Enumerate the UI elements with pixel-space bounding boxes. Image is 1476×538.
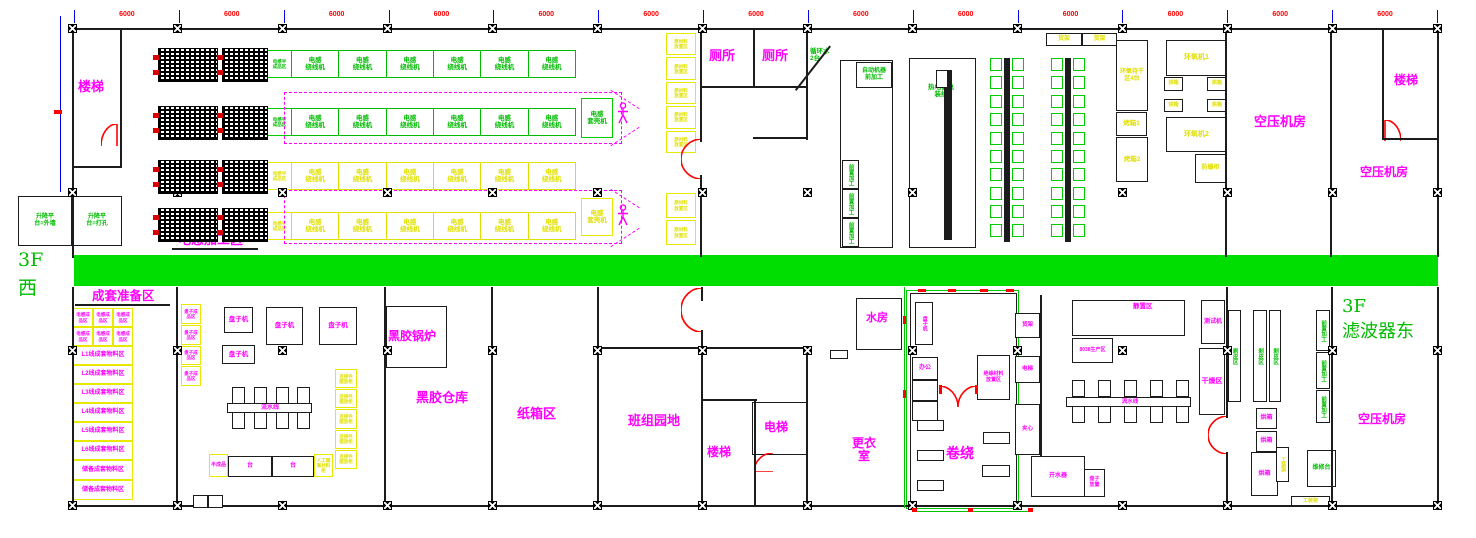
column-marker <box>383 501 392 510</box>
column-marker <box>173 24 182 33</box>
column-marker <box>593 24 602 33</box>
wall <box>753 28 755 88</box>
chair <box>1051 113 1063 126</box>
glue-store-label: 黑胶仓库 <box>416 391 468 406</box>
column-marker <box>698 346 707 355</box>
pre-process-box: 前置加工 <box>842 189 859 218</box>
pre-process-box-2: 前置加工 <box>1316 390 1330 423</box>
bay-dimension: 6000 <box>914 10 1019 23</box>
bay-dimension: 6000 <box>180 10 285 23</box>
left-dimension-line <box>60 16 61 192</box>
chair <box>1051 58 1063 71</box>
wall <box>1225 28 1227 257</box>
column-marker <box>383 188 392 197</box>
chair <box>1176 406 1189 423</box>
floor-tag-left-west: 西 <box>18 278 37 299</box>
chair <box>990 76 1002 89</box>
person-icon <box>616 102 630 124</box>
work-table <box>208 495 223 508</box>
chair <box>232 412 245 429</box>
door-arc <box>754 453 773 472</box>
wall <box>806 348 808 505</box>
inductor-finished-grid: 电感成 品区电感成 品区电感成 品区电感成 品区电感成 品区电感成 品区 <box>73 308 133 346</box>
raw-material-box: 原材料 放置区 <box>666 106 696 128</box>
chair <box>1072 380 1085 397</box>
connector-rack: 连接件 摆放柜连接件 摆放柜连接件 摆放柜连接件 摆放柜连接件 摆放柜 <box>335 369 357 469</box>
floor-tag-right-east: 滤波器东 <box>1342 322 1414 342</box>
raw-material-rack: 原材料 放置区原材料 放置区原材料 放置区原材料 放置区原材料 放置区 <box>666 33 696 153</box>
rest-area-box <box>1072 300 1185 336</box>
raw-material-rack: 原材料 放置区原材料 放置区 <box>666 193 696 245</box>
column-marker <box>803 501 812 510</box>
press-machine-icon <box>222 208 268 242</box>
auto-machine-label: 自动机器 前加工 <box>856 62 892 88</box>
chair <box>1073 205 1085 218</box>
chair <box>254 412 267 429</box>
peeling-area-box: 剥皮区 <box>1253 310 1267 402</box>
semi-finished-tag: 电感半 成品区 <box>267 162 292 190</box>
stairs-bottom-label: 楼梯 <box>707 446 731 459</box>
production-area-box: 8038生产区 <box>1072 338 1113 363</box>
bay-dimension: 6000 <box>809 10 914 23</box>
column-marker <box>1013 24 1022 33</box>
chair <box>1051 150 1063 163</box>
air-compressor-room-label: 空压机房 <box>1360 166 1408 179</box>
connector-cabinet: 连接件 摆放柜 <box>335 389 357 408</box>
wall <box>384 287 386 505</box>
bay-dimension: 6000 <box>1333 10 1438 23</box>
wall <box>701 287 703 301</box>
wall <box>1226 452 1228 506</box>
casing-machine: 电感 套壳机 <box>581 98 613 138</box>
column-marker <box>68 24 77 33</box>
test-machine-box: 测试机 <box>1201 300 1225 344</box>
bay-dimension: 6000 <box>599 10 704 23</box>
double-door <box>939 386 977 407</box>
column-marker <box>1118 501 1127 510</box>
chair <box>1073 76 1085 89</box>
column-marker <box>908 188 917 197</box>
office-box: 办公 <box>912 357 938 380</box>
work-table <box>917 480 944 491</box>
plate-finished-cell: 盘子成 品区 <box>181 304 201 324</box>
plate-finished-cell: 盘子成 品区 <box>181 366 201 386</box>
press-machine-icon <box>158 208 218 242</box>
plate-machine: 盘子机 <box>224 307 253 333</box>
material-row: L5线成套物料区 <box>73 422 133 441</box>
pre-process-box: 前置加工 <box>842 160 859 189</box>
bench-box: 台 <box>228 456 272 477</box>
column-marker <box>1328 24 1337 33</box>
column-marker <box>908 24 917 33</box>
bench-box: 台 <box>272 456 314 477</box>
water-heater-room: 开水器 <box>1031 456 1085 497</box>
red-dimension-mark <box>948 289 956 292</box>
plate-finished-cell: 盘子成 品区 <box>181 346 201 366</box>
drying-area-box: 干燥区 <box>1199 348 1225 415</box>
press-machine-icon <box>158 106 218 140</box>
chair <box>1051 224 1063 237</box>
column-marker <box>1223 188 1232 197</box>
red-dimension-mark <box>903 390 906 398</box>
chair <box>1012 224 1024 237</box>
work-table <box>982 465 1010 477</box>
winding-machine-cell: 电感 绕线机 <box>528 50 576 78</box>
column-marker <box>1223 346 1232 355</box>
plate-machine: 盘子机 <box>266 307 303 345</box>
pre-process-box-2: 前置加工 <box>1316 310 1330 351</box>
chair <box>990 168 1002 181</box>
column-marker <box>1118 188 1127 197</box>
rest-area-label: 静置区 <box>1133 303 1153 310</box>
wall <box>806 28 808 140</box>
wall <box>1330 28 1332 257</box>
chair <box>1051 187 1063 200</box>
chair <box>1012 113 1024 126</box>
chair <box>1098 380 1111 397</box>
work-table <box>830 350 848 359</box>
wall <box>1437 28 1439 257</box>
column-marker <box>278 501 287 510</box>
peeling-area-box: 剥皮区 <box>1228 310 1241 402</box>
wall <box>700 88 702 142</box>
peeling-area-box: 剥皮区 <box>1269 310 1281 402</box>
dimension-strip: 6000600060006000600060006000600060006000… <box>74 10 1438 23</box>
column-marker <box>278 24 287 33</box>
red-dimension-mark <box>939 385 942 394</box>
wall <box>72 287 74 507</box>
column-marker <box>278 188 287 197</box>
shelf-box: 货架 <box>1082 33 1117 46</box>
column-marker <box>803 24 812 33</box>
chair <box>1073 113 1085 126</box>
chair <box>1051 76 1063 89</box>
chair <box>990 150 1002 163</box>
inductor-finished-cell: 电感成 品区 <box>113 327 133 346</box>
column-marker <box>173 346 182 355</box>
column-marker <box>488 501 497 510</box>
chair <box>1012 95 1024 108</box>
air-compressor-room-label-br: 空压机房 <box>1358 413 1406 426</box>
wall <box>120 28 122 168</box>
changing-room-label: 更衣 室 <box>852 437 876 464</box>
column-marker <box>383 346 392 355</box>
work-table <box>917 420 944 431</box>
bay-dimension: 6000 <box>1228 10 1333 23</box>
floor-tag-left-3f: 3F <box>18 250 43 271</box>
stairs-top-left-label: 楼梯 <box>78 80 104 95</box>
small-oven: 烘箱 <box>1164 77 1183 91</box>
work-table <box>912 401 938 421</box>
cabinet-box <box>912 380 938 401</box>
core-box: 夹心 <box>1015 404 1040 455</box>
title-underline <box>75 304 170 306</box>
small-oven: 烘箱 <box>1207 99 1227 112</box>
wall <box>700 86 808 88</box>
lift-platform-drill: 升降平 台=打孔 <box>72 196 122 246</box>
press-machine-icon <box>222 106 268 140</box>
red-dimension-mark <box>912 508 917 512</box>
chair <box>1150 380 1163 397</box>
inductor-finished-cell: 电感成 品区 <box>73 327 93 346</box>
material-row: L4线成套物料区 <box>73 403 133 422</box>
lift-platform-wall: 升降平 台=外墙 <box>18 196 72 246</box>
press-machine-icon <box>158 160 218 194</box>
corridor-band <box>74 255 1438 286</box>
column-marker <box>593 188 602 197</box>
column-marker <box>908 346 917 355</box>
chair <box>1072 406 1085 423</box>
bay-dimension: 6000 <box>74 10 180 23</box>
chair <box>1073 58 1085 71</box>
fixture-rack-box: 工装架 <box>1276 447 1289 482</box>
conveyor-bar <box>1004 58 1010 242</box>
column-marker <box>1328 501 1337 510</box>
plate-machine-vertical: 盘子机 <box>915 302 933 345</box>
plate-machine: 盘子机 <box>319 307 357 345</box>
title-underline <box>172 248 258 250</box>
inductor-finished-cell: 电感成 品区 <box>93 308 113 327</box>
oven-box: 烘箱 <box>1256 431 1277 452</box>
raw-material-box: 原材料 放置区 <box>666 193 696 218</box>
chair <box>1098 406 1111 423</box>
column-marker <box>1013 346 1022 355</box>
wall <box>491 287 493 505</box>
column-marker <box>1223 501 1232 510</box>
epoxy-dry-area: 环氧待干区4台 <box>1116 40 1148 111</box>
red-dimension-mark <box>975 385 978 394</box>
inductor-finished-cell: 电感成 品区 <box>73 308 93 327</box>
chair <box>1012 150 1024 163</box>
carton-area-label: 纸箱区 <box>517 407 556 422</box>
wall <box>1382 138 1439 140</box>
wall <box>1437 287 1439 507</box>
connector-cabinet: 连接件 摆放柜 <box>335 450 357 469</box>
wall <box>597 287 599 505</box>
raw-material-box: 原材料 放置区 <box>666 33 696 55</box>
air-compressor-room-label: 空压机房 <box>1254 115 1306 130</box>
connector-cabinet: 连接件 摆放柜 <box>335 409 357 428</box>
column-marker <box>593 346 602 355</box>
chair <box>1124 380 1137 397</box>
oven-2: 烤箱2 <box>1116 137 1148 182</box>
bay-dimension: 6000 <box>494 10 599 23</box>
winding-machine-cell: 电感 绕线机 <box>528 162 576 190</box>
winding-zone-label: 卷绕 <box>946 446 974 462</box>
work-table <box>936 70 948 88</box>
material-row: L1线成套物料区 <box>73 346 133 365</box>
material-row: L2线成套物料区 <box>73 365 133 384</box>
winding-machine-cell: 电感 绕线机 <box>291 50 339 78</box>
chair <box>297 387 310 404</box>
chair <box>1012 132 1024 145</box>
chair <box>276 412 289 429</box>
column-marker <box>383 24 392 33</box>
chair <box>990 205 1002 218</box>
column-marker <box>698 501 707 510</box>
column-marker <box>488 346 497 355</box>
chair <box>1012 205 1024 218</box>
press-machine-icon <box>222 160 268 194</box>
raw-material-box: 原材料 放置区 <box>666 220 696 245</box>
chair <box>232 387 245 404</box>
wall <box>701 348 703 505</box>
chair <box>276 387 289 404</box>
person-icon <box>616 204 630 226</box>
column-marker <box>698 24 707 33</box>
chair <box>1012 187 1024 200</box>
inductor-finished-cell: 电感成 品区 <box>113 308 133 327</box>
winding-machine-cell: 电感 绕线机 <box>291 162 339 190</box>
work-table <box>983 432 1010 444</box>
material-row: 储备成套物料区 <box>73 480 133 500</box>
column-marker <box>803 188 812 197</box>
water-room-label: 水房 <box>866 312 888 324</box>
winding-machine-cell: 电感 绕线机 <box>480 50 528 78</box>
chair <box>1073 95 1085 108</box>
red-dimension-mark <box>968 508 973 512</box>
pre-process-box: 前置加工 <box>842 218 859 247</box>
bay-dimension: 6000 <box>1123 10 1228 23</box>
chair <box>1051 132 1063 145</box>
chair <box>1073 187 1085 200</box>
floor-plan: 6000600060006000600060006000600060006000… <box>0 0 1476 538</box>
oven-1: 烤箱1 <box>1116 112 1147 136</box>
semi-finished-box: 半成品 <box>209 454 228 477</box>
wall <box>1331 287 1333 505</box>
connector-cabinet: 连接件 摆放柜 <box>335 430 357 449</box>
red-dimension-mark <box>1028 508 1033 512</box>
column-marker <box>1433 188 1442 197</box>
stairs-top-right-label: 楼梯 <box>1394 74 1418 87</box>
winding-machine-cell: 电感 绕线机 <box>386 162 434 190</box>
work-table <box>917 450 944 461</box>
column-marker <box>803 346 812 355</box>
assembly-line-label: 流水线 <box>240 403 300 413</box>
elevator-shaft-box: 电梯 <box>1015 356 1040 383</box>
small-oven: 烘箱 <box>1207 77 1227 91</box>
insulation-material-box: 绝缘材料 放置区 <box>977 355 1010 400</box>
chair <box>1150 406 1163 423</box>
red-dimension-mark <box>980 289 988 292</box>
winding-machine-cell: 电感 绕线机 <box>480 162 528 190</box>
chair <box>1073 150 1085 163</box>
wall <box>753 137 808 139</box>
double-door <box>681 139 702 179</box>
column-marker <box>1118 24 1127 33</box>
wall <box>1382 28 1384 140</box>
column-marker <box>698 188 707 197</box>
wall <box>176 287 178 505</box>
wall <box>754 399 756 505</box>
column-marker <box>1223 24 1232 33</box>
plate-finished-rack: 盘子成 品区盘子成 品区盘子成 品区盘子成 品区 <box>181 304 201 386</box>
red-dimension-mark <box>903 316 906 324</box>
press-machine-icon <box>158 48 218 82</box>
column-marker <box>488 24 497 33</box>
team-area-label: 班组园地 <box>628 414 680 429</box>
chair <box>990 58 1002 71</box>
oven-box: 烘箱 <box>1251 452 1278 496</box>
chair <box>1051 95 1063 108</box>
column-marker <box>1118 346 1127 355</box>
column-marker <box>1013 501 1022 510</box>
column-marker <box>278 346 287 355</box>
inductor-finished-cell: 电感成 品区 <box>93 327 113 346</box>
chair <box>1073 168 1085 181</box>
column-marker <box>593 501 602 510</box>
door-arc <box>101 124 119 146</box>
winding-machine-cell: 电感 绕线机 <box>338 162 386 190</box>
bay-dimension: 6000 <box>285 10 390 23</box>
red-dimension-mark <box>54 110 62 114</box>
pre-process-box-2: 前置加工 <box>1316 352 1330 389</box>
material-row: L3线成套物料区 <box>73 384 133 403</box>
chair <box>1176 380 1189 397</box>
winding-row-3: 电感 绕线机电感 绕线机电感 绕线机电感 绕线机电感 绕线机电感 绕线机 <box>292 162 576 190</box>
material-row: L6线成套物料区 <box>73 441 133 460</box>
chair <box>1051 168 1063 181</box>
plate-machine: 盘子机 <box>222 345 255 364</box>
chair <box>1012 76 1024 89</box>
column-marker <box>68 188 77 197</box>
column-marker <box>488 188 497 197</box>
winding-row-1: 电感 绕线机电感 绕线机电感 绕线机电感 绕线机电感 绕线机电感 绕线机 <box>292 50 576 78</box>
column-marker <box>173 501 182 510</box>
chair <box>1073 132 1085 145</box>
conveyor-bar <box>1065 58 1071 242</box>
red-dimension-mark <box>1006 289 1014 292</box>
column-marker <box>1328 188 1337 197</box>
double-door <box>1208 416 1228 454</box>
chair <box>990 113 1002 126</box>
toilet-label: 厕所 <box>762 49 788 64</box>
shelf-box: 货架 <box>1046 33 1082 46</box>
chair <box>990 224 1002 237</box>
chair <box>990 187 1002 200</box>
column-marker <box>68 346 77 355</box>
chair <box>1051 205 1063 218</box>
chair <box>297 412 310 429</box>
work-table <box>193 495 208 508</box>
wall <box>1040 295 1042 457</box>
bay-dimension: 6000 <box>390 10 495 23</box>
glue-boiler-label: 黑胶锅炉 <box>388 330 436 343</box>
winding-machine-cell: 电感 绕线机 <box>338 50 386 78</box>
column-marker <box>68 501 77 510</box>
press-machine-icon <box>222 48 268 82</box>
flow-outline-row2 <box>284 92 622 144</box>
double-door <box>681 288 702 332</box>
winding-machine-cell: 电感 绕线机 <box>433 162 481 190</box>
column-marker <box>1328 346 1337 355</box>
wall <box>72 166 122 168</box>
winding-machine-cell: 电感 绕线机 <box>386 50 434 78</box>
chair <box>990 132 1002 145</box>
chair <box>990 95 1002 108</box>
assembly-line-bar <box>944 70 952 240</box>
small-oven: 烘箱 <box>1164 99 1183 112</box>
chair <box>1124 406 1137 423</box>
chair <box>1073 224 1085 237</box>
elevator-label: 电梯 <box>764 421 788 434</box>
freight-box: 货架 <box>1015 313 1040 338</box>
column-marker <box>1433 346 1442 355</box>
epoxy-machine-2: 环氧机2 <box>1166 117 1227 152</box>
chair <box>1012 58 1024 71</box>
wall <box>701 399 757 401</box>
wall <box>700 28 702 88</box>
